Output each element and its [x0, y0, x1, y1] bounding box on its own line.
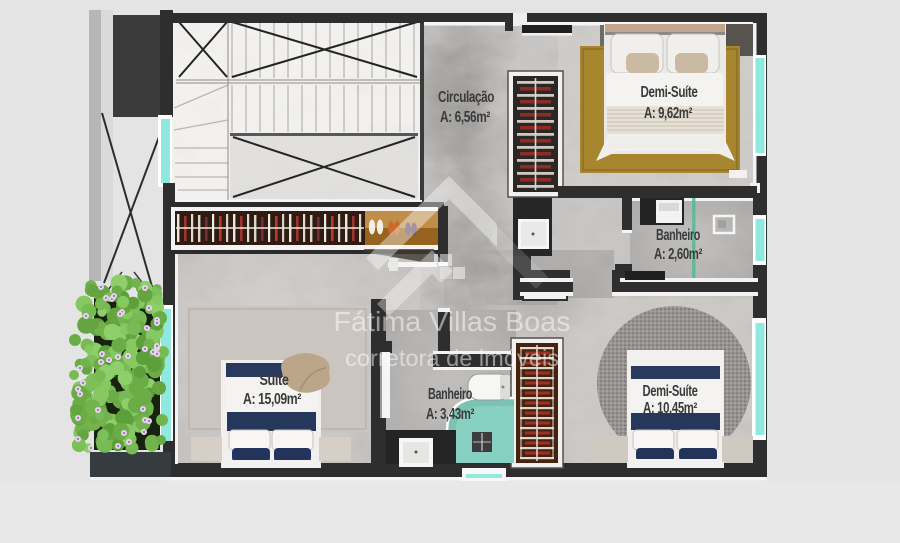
svg-text:Banheiro: Banheiro: [428, 386, 472, 403]
svg-text:A: 15,09m²: A: 15,09m²: [243, 391, 301, 408]
svg-text:A: 10,45m²: A: 10,45m²: [643, 400, 697, 417]
svg-text:Demi-Suíte: Demi-Suíte: [641, 84, 699, 101]
svg-text:A: 9,62m²: A: 9,62m²: [644, 105, 692, 122]
svg-text:A: 3,43m²: A: 3,43m²: [426, 406, 474, 423]
svg-text:Banheiro: Banheiro: [656, 227, 700, 244]
svg-text:Suite: Suite: [260, 372, 290, 389]
svg-text:A: 2,60m²: A: 2,60m²: [654, 246, 702, 263]
svg-text:corretora de imóveis: corretora de imóveis: [345, 345, 559, 371]
svg-text:A: 6,56m²: A: 6,56m²: [440, 109, 490, 126]
svg-text:Fátima Villas Boas: Fátima Villas Boas: [334, 306, 571, 337]
svg-text:Demi-Suíte: Demi-Suíte: [643, 383, 699, 400]
svg-text:Circulação: Circulação: [438, 89, 494, 106]
